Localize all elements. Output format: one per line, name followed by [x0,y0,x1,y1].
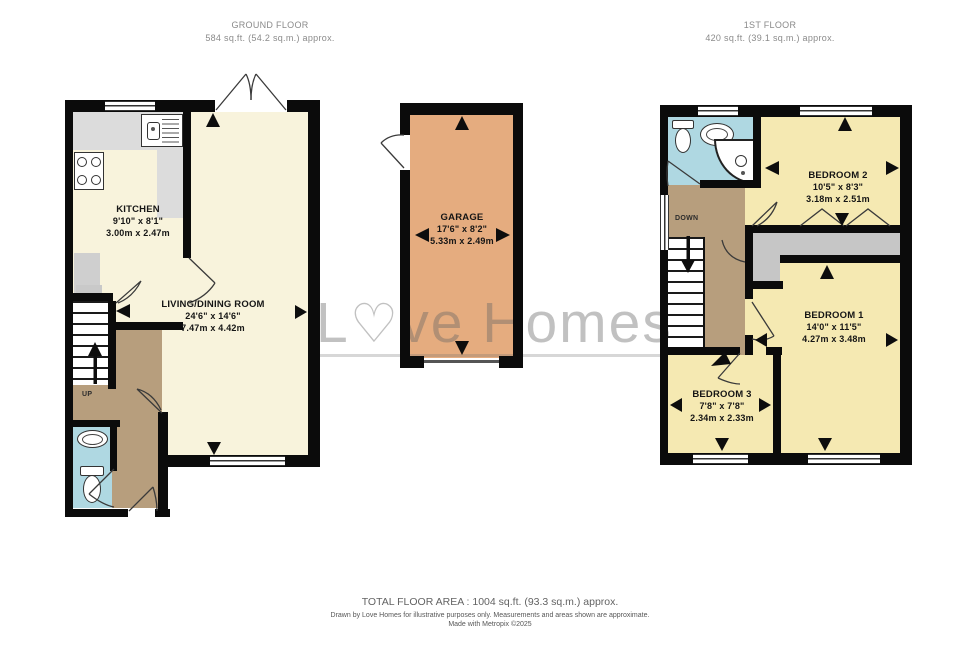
heart-icon: ♡ [350,294,401,354]
wall [745,225,753,287]
window [698,106,738,116]
stairs-up [73,301,110,385]
room-name: LIVING/DINING ROOM [143,299,283,311]
wall [108,301,116,389]
wc-basin [77,430,108,448]
sink-drain [151,127,155,131]
bedroom2-label: BEDROOM 2 10'5" x 8'3" 3.18m x 2.51m [770,170,906,206]
wc-toilet-bowl [83,475,101,503]
room-dims-metric: 3.18m x 2.51m [770,194,906,206]
stairs-down [668,237,705,349]
garage-door-line [424,360,499,363]
ground-floor-title: GROUND FLOOR [120,19,420,32]
wall [110,427,117,471]
shower-head-icon [735,155,747,167]
room-name: KITCHEN [77,204,199,216]
garage-label: GARAGE 17'6" x 8'2" 5.33m x 2.49m [402,212,522,248]
wall [65,293,113,301]
room-dims-imperial: 7'8" x 7'8" [662,401,782,413]
wall [400,103,410,135]
room-dims-metric: 7.47m x 4.42m [143,323,283,335]
wall [745,335,753,355]
love-homes-watermark: L♡ve Homes [316,290,673,356]
wall [900,105,912,465]
room-dims-imperial: 24'6" x 14'6" [143,311,283,323]
window [105,101,155,111]
first-floor-header: 1ST FLOOR 420 sq.ft. (39.1 sq.m.) approx… [620,19,920,44]
room-name: GARAGE [402,212,522,224]
sink-bowl [147,122,160,140]
wall [308,100,320,467]
ground-floor-area: 584 sq.ft. (54.2 sq.m.) approx. [120,32,420,45]
french-door-right [251,74,286,110]
room-dims-metric: 2.34m x 2.33m [662,413,782,425]
garage-door [381,135,404,168]
sink-drainer [162,119,179,143]
shower-drain [741,171,745,175]
hallway [112,330,162,508]
bath-toilet-bowl [675,128,691,153]
ground-floor-header: GROUND FLOOR 584 sq.ft. (54.2 sq.m.) app… [120,19,420,44]
wall [780,255,912,263]
first-floor-area: 420 sq.ft. (39.1 sq.m.) approx. [620,32,920,45]
window [210,456,285,466]
watermark-text-rest: ve Homes [400,291,673,355]
window [808,454,880,464]
wc-basin-bowl [82,434,103,445]
watermark-underline [316,354,666,357]
wall [400,103,523,115]
window [660,195,669,250]
wall [400,170,410,368]
wall [745,287,753,299]
wall [745,225,912,233]
french-door-left [216,74,251,110]
total-floor-area: TOTAL FLOOR AREA : 1004 sq.ft. (93.3 sq.… [240,596,740,608]
living-label: LIVING/DINING ROOM 24'6" x 14'6" 7.47m x… [143,299,283,335]
floorplan-canvas: GROUND FLOOR 584 sq.ft. (54.2 sq.m.) app… [0,0,980,661]
kitchen-sink-unit [141,114,183,147]
room-name: BEDROOM 1 [766,310,902,322]
wall [700,180,761,188]
window [800,106,872,116]
room-dims-metric: 4.27m x 3.48m [766,334,902,346]
wall [660,105,668,197]
window [693,454,748,464]
first-floor-title: 1ST FLOOR [620,19,920,32]
room-dims-imperial: 17'6" x 8'2" [402,224,522,236]
room-dims-metric: 5.33m x 2.49m [402,236,522,248]
wall [65,420,120,427]
room-dims-imperial: 14'0" x 11'5" [766,322,902,334]
wall [410,356,424,368]
metropix-credit: Made with Metropix ©2025 [140,621,840,628]
stairs-down-label: DOWN [675,215,698,222]
stairs-up-label: UP [82,391,92,398]
wall [65,509,128,517]
wall [753,117,761,187]
bedroom1-label: BEDROOM 1 14'0" x 11'5" 4.27m x 3.48m [766,310,902,346]
watermark-text: L [316,291,350,355]
hob-icon [74,152,104,190]
disclaimer: Drawn by Love Homes for illustrative pur… [140,612,840,619]
room-name: BEDROOM 3 [662,389,782,401]
kitchen-label: KITCHEN 9'10" x 8'1" 3.00m x 2.47m [77,204,199,240]
wall [660,347,740,355]
room-dims-imperial: 10'5" x 8'3" [770,182,906,194]
wall [499,356,513,368]
room-name: BEDROOM 2 [770,170,906,182]
wall [65,100,73,517]
bedroom3-label: BEDROOM 3 7'8" x 7'8" 2.34m x 2.33m [662,389,782,425]
wall [766,347,782,355]
room-dims-metric: 3.00m x 2.47m [77,228,199,240]
room-dims-imperial: 9'10" x 8'1" [77,216,199,228]
